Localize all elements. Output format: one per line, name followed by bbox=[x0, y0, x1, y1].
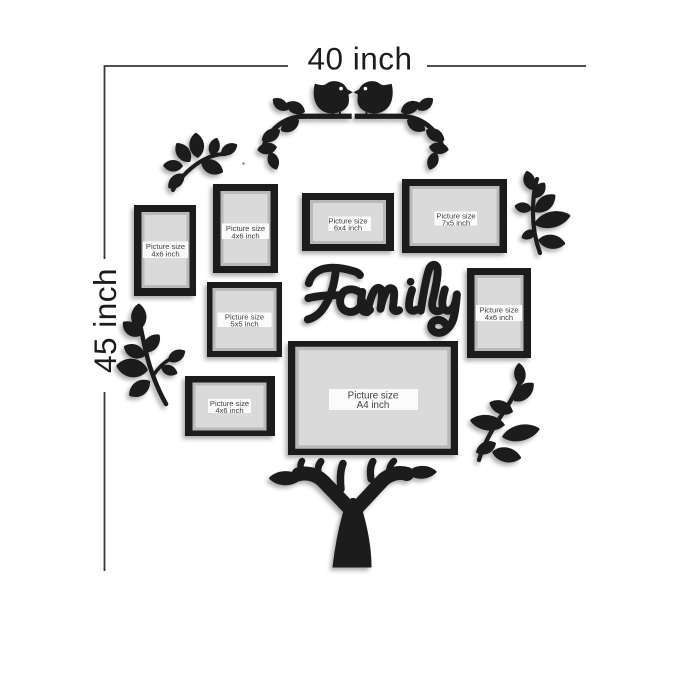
svg-text:45 inch: 45 inch bbox=[87, 268, 123, 373]
svg-text:7x5 inch: 7x5 inch bbox=[442, 219, 470, 228]
svg-text:4x6 inch: 4x6 inch bbox=[231, 232, 259, 241]
svg-text:4x6 inch: 4x6 inch bbox=[215, 406, 243, 415]
svg-text:40 inch: 40 inch bbox=[307, 41, 412, 77]
svg-text:A4 inch: A4 inch bbox=[357, 400, 390, 411]
svg-text:6x4 inch: 6x4 inch bbox=[334, 224, 362, 233]
svg-text:5x5 inch: 5x5 inch bbox=[230, 320, 258, 329]
svg-text:4x6 inch: 4x6 inch bbox=[485, 313, 513, 322]
svg-text:4x6 inch: 4x6 inch bbox=[151, 250, 179, 259]
